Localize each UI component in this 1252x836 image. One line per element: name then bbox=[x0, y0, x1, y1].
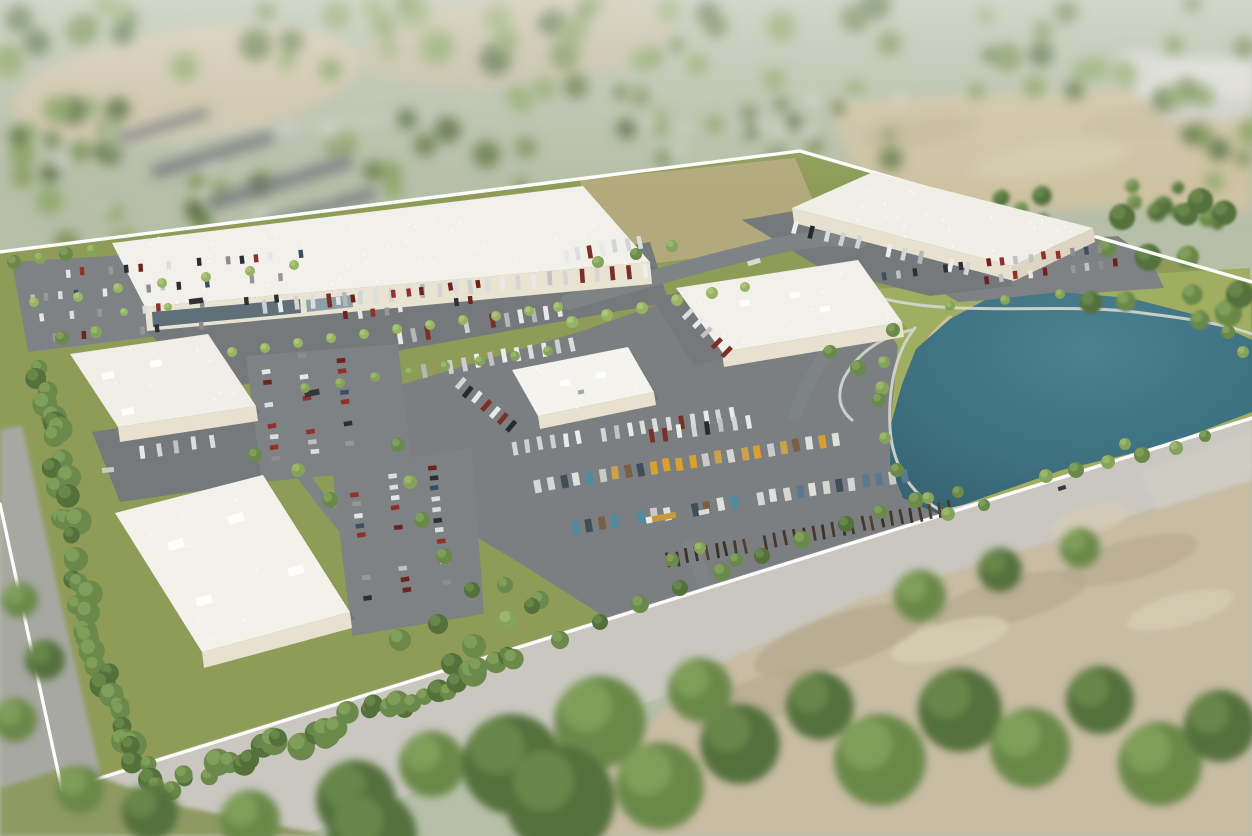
industrial-park-aerial-render bbox=[0, 0, 1252, 836]
vehicle bbox=[102, 467, 114, 473]
scene-root bbox=[0, 0, 1252, 836]
vehicle bbox=[645, 516, 652, 524]
aerial-render-stage bbox=[0, 0, 1252, 836]
haze bbox=[0, 0, 1252, 190]
